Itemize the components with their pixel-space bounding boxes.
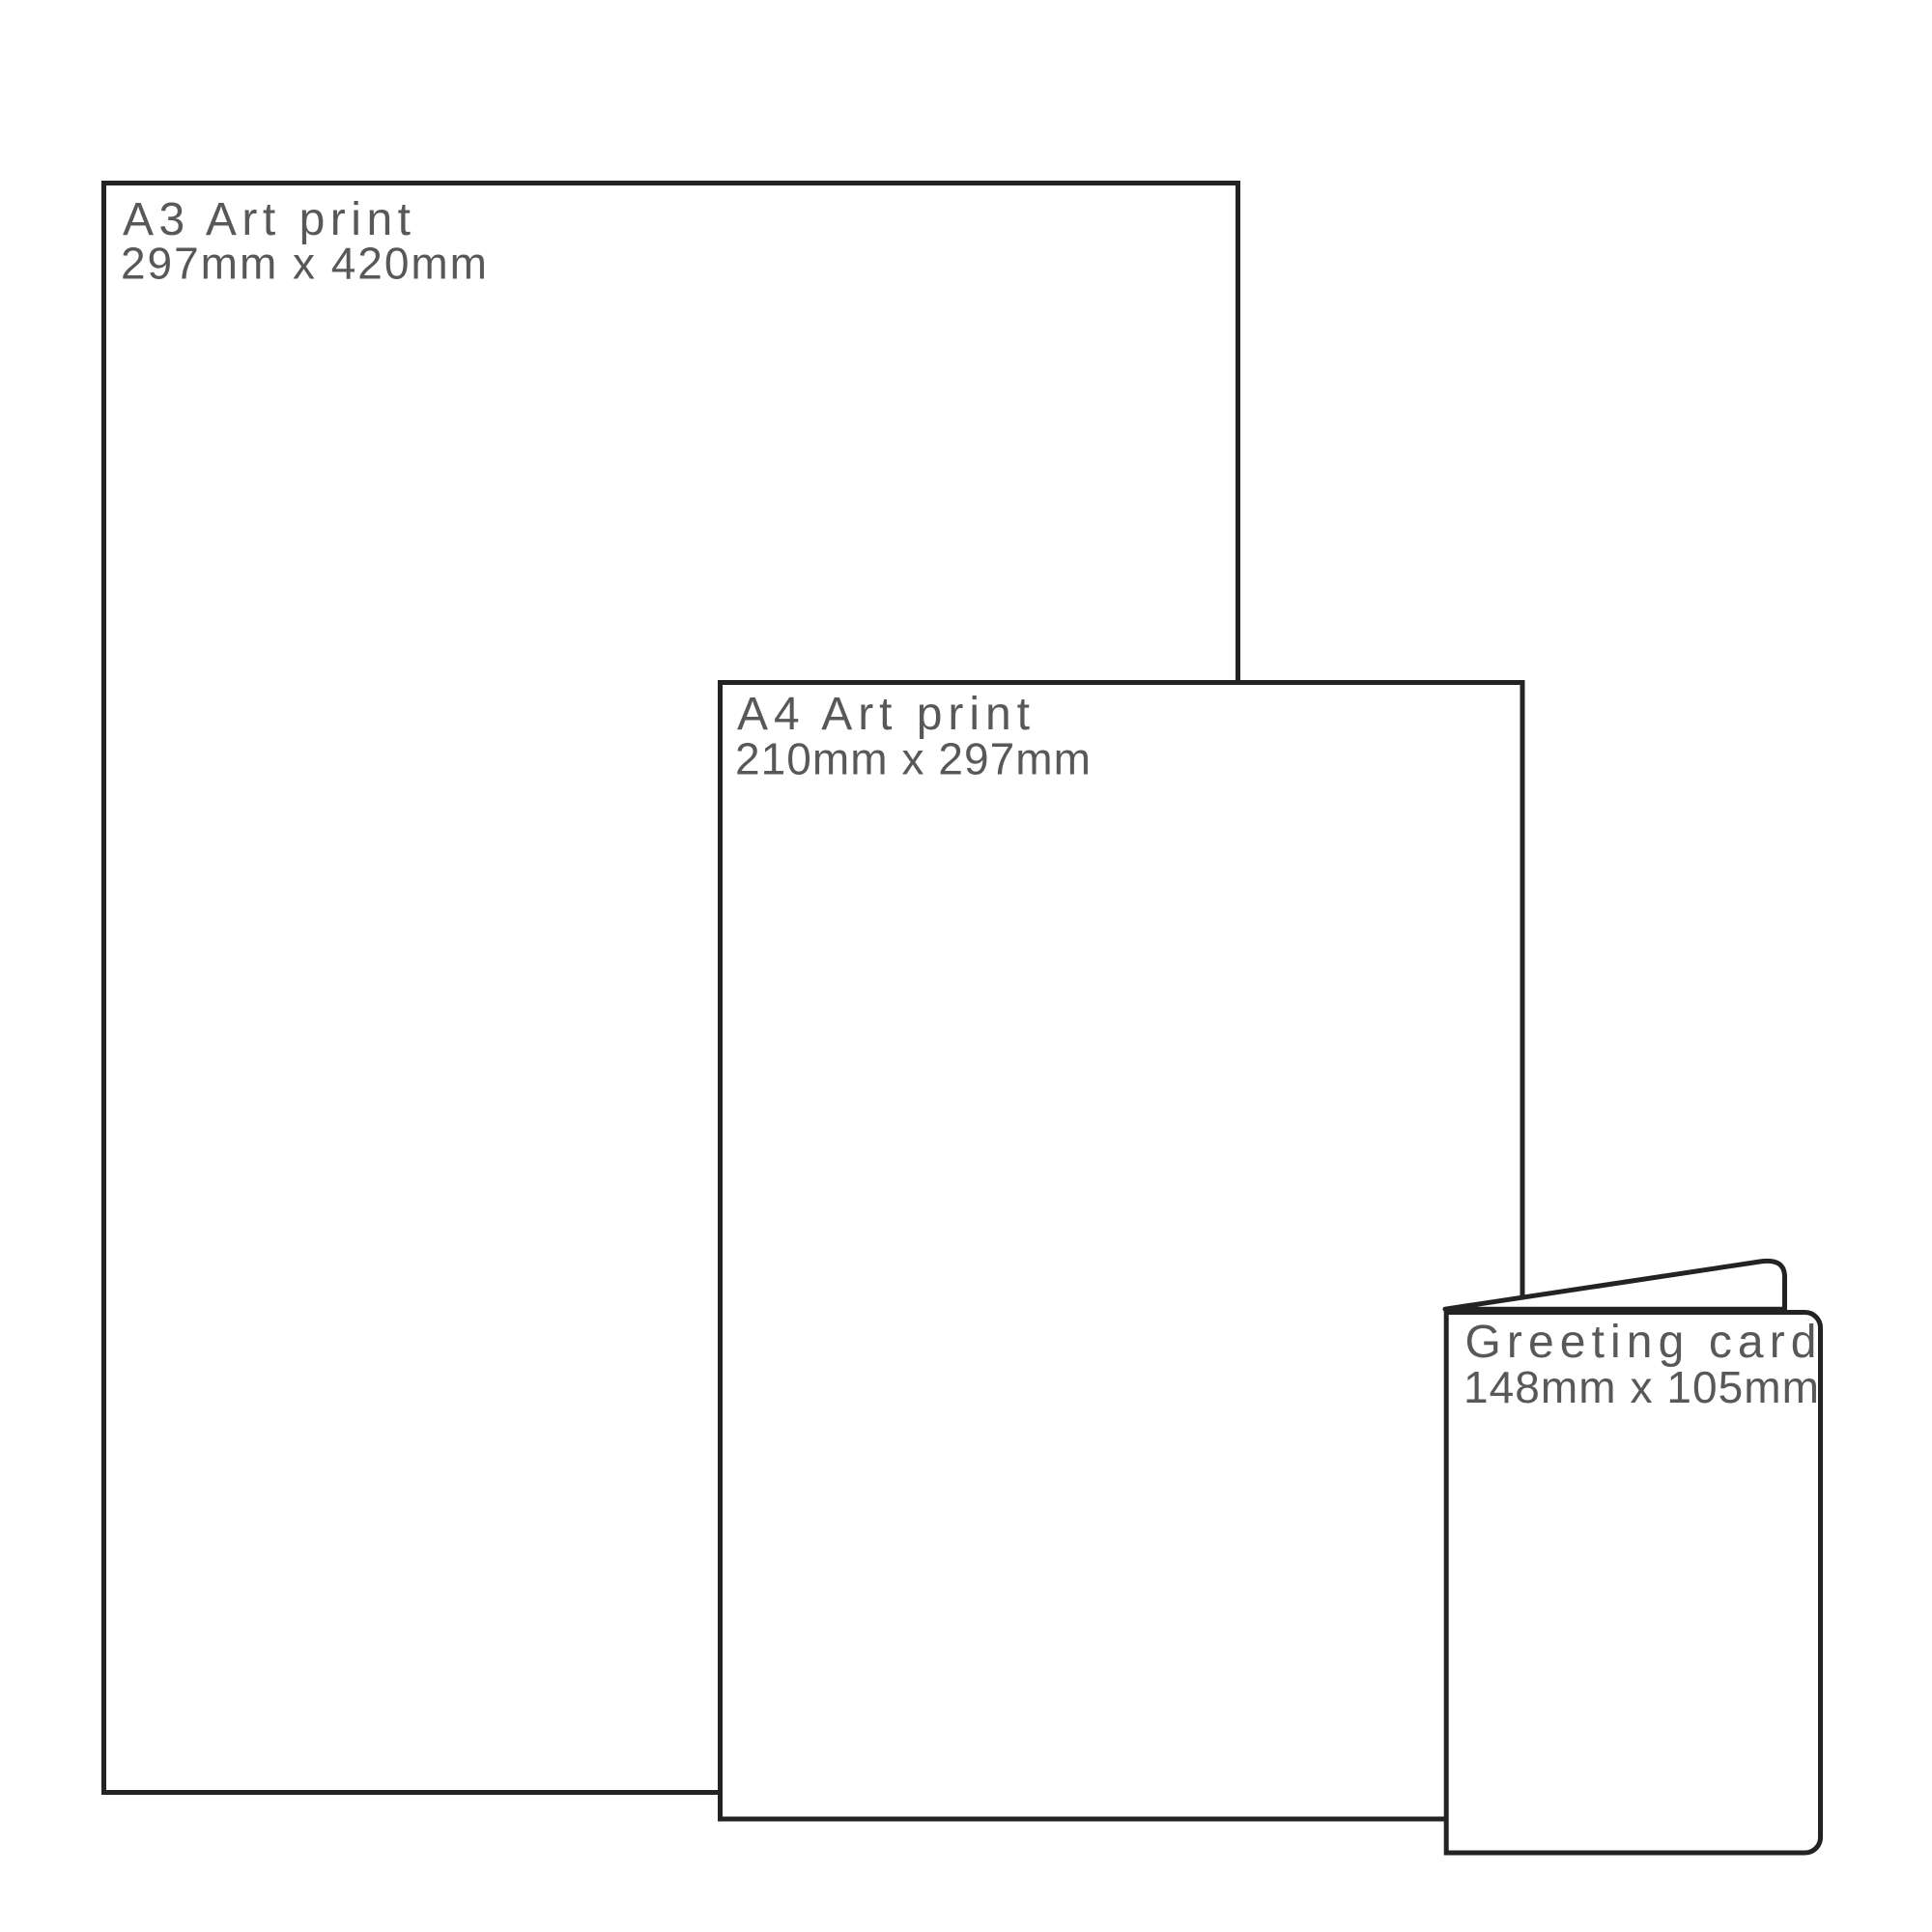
svg-text:210mm x 297mm: 210mm x 297mm (735, 734, 1091, 784)
svg-text:A4 Art print: A4 Art print (737, 689, 1030, 740)
svg-text:148mm x 105mm: 148mm x 105mm (1463, 1362, 1819, 1412)
svg-text:297mm x 420mm: 297mm x 420mm (121, 239, 487, 289)
